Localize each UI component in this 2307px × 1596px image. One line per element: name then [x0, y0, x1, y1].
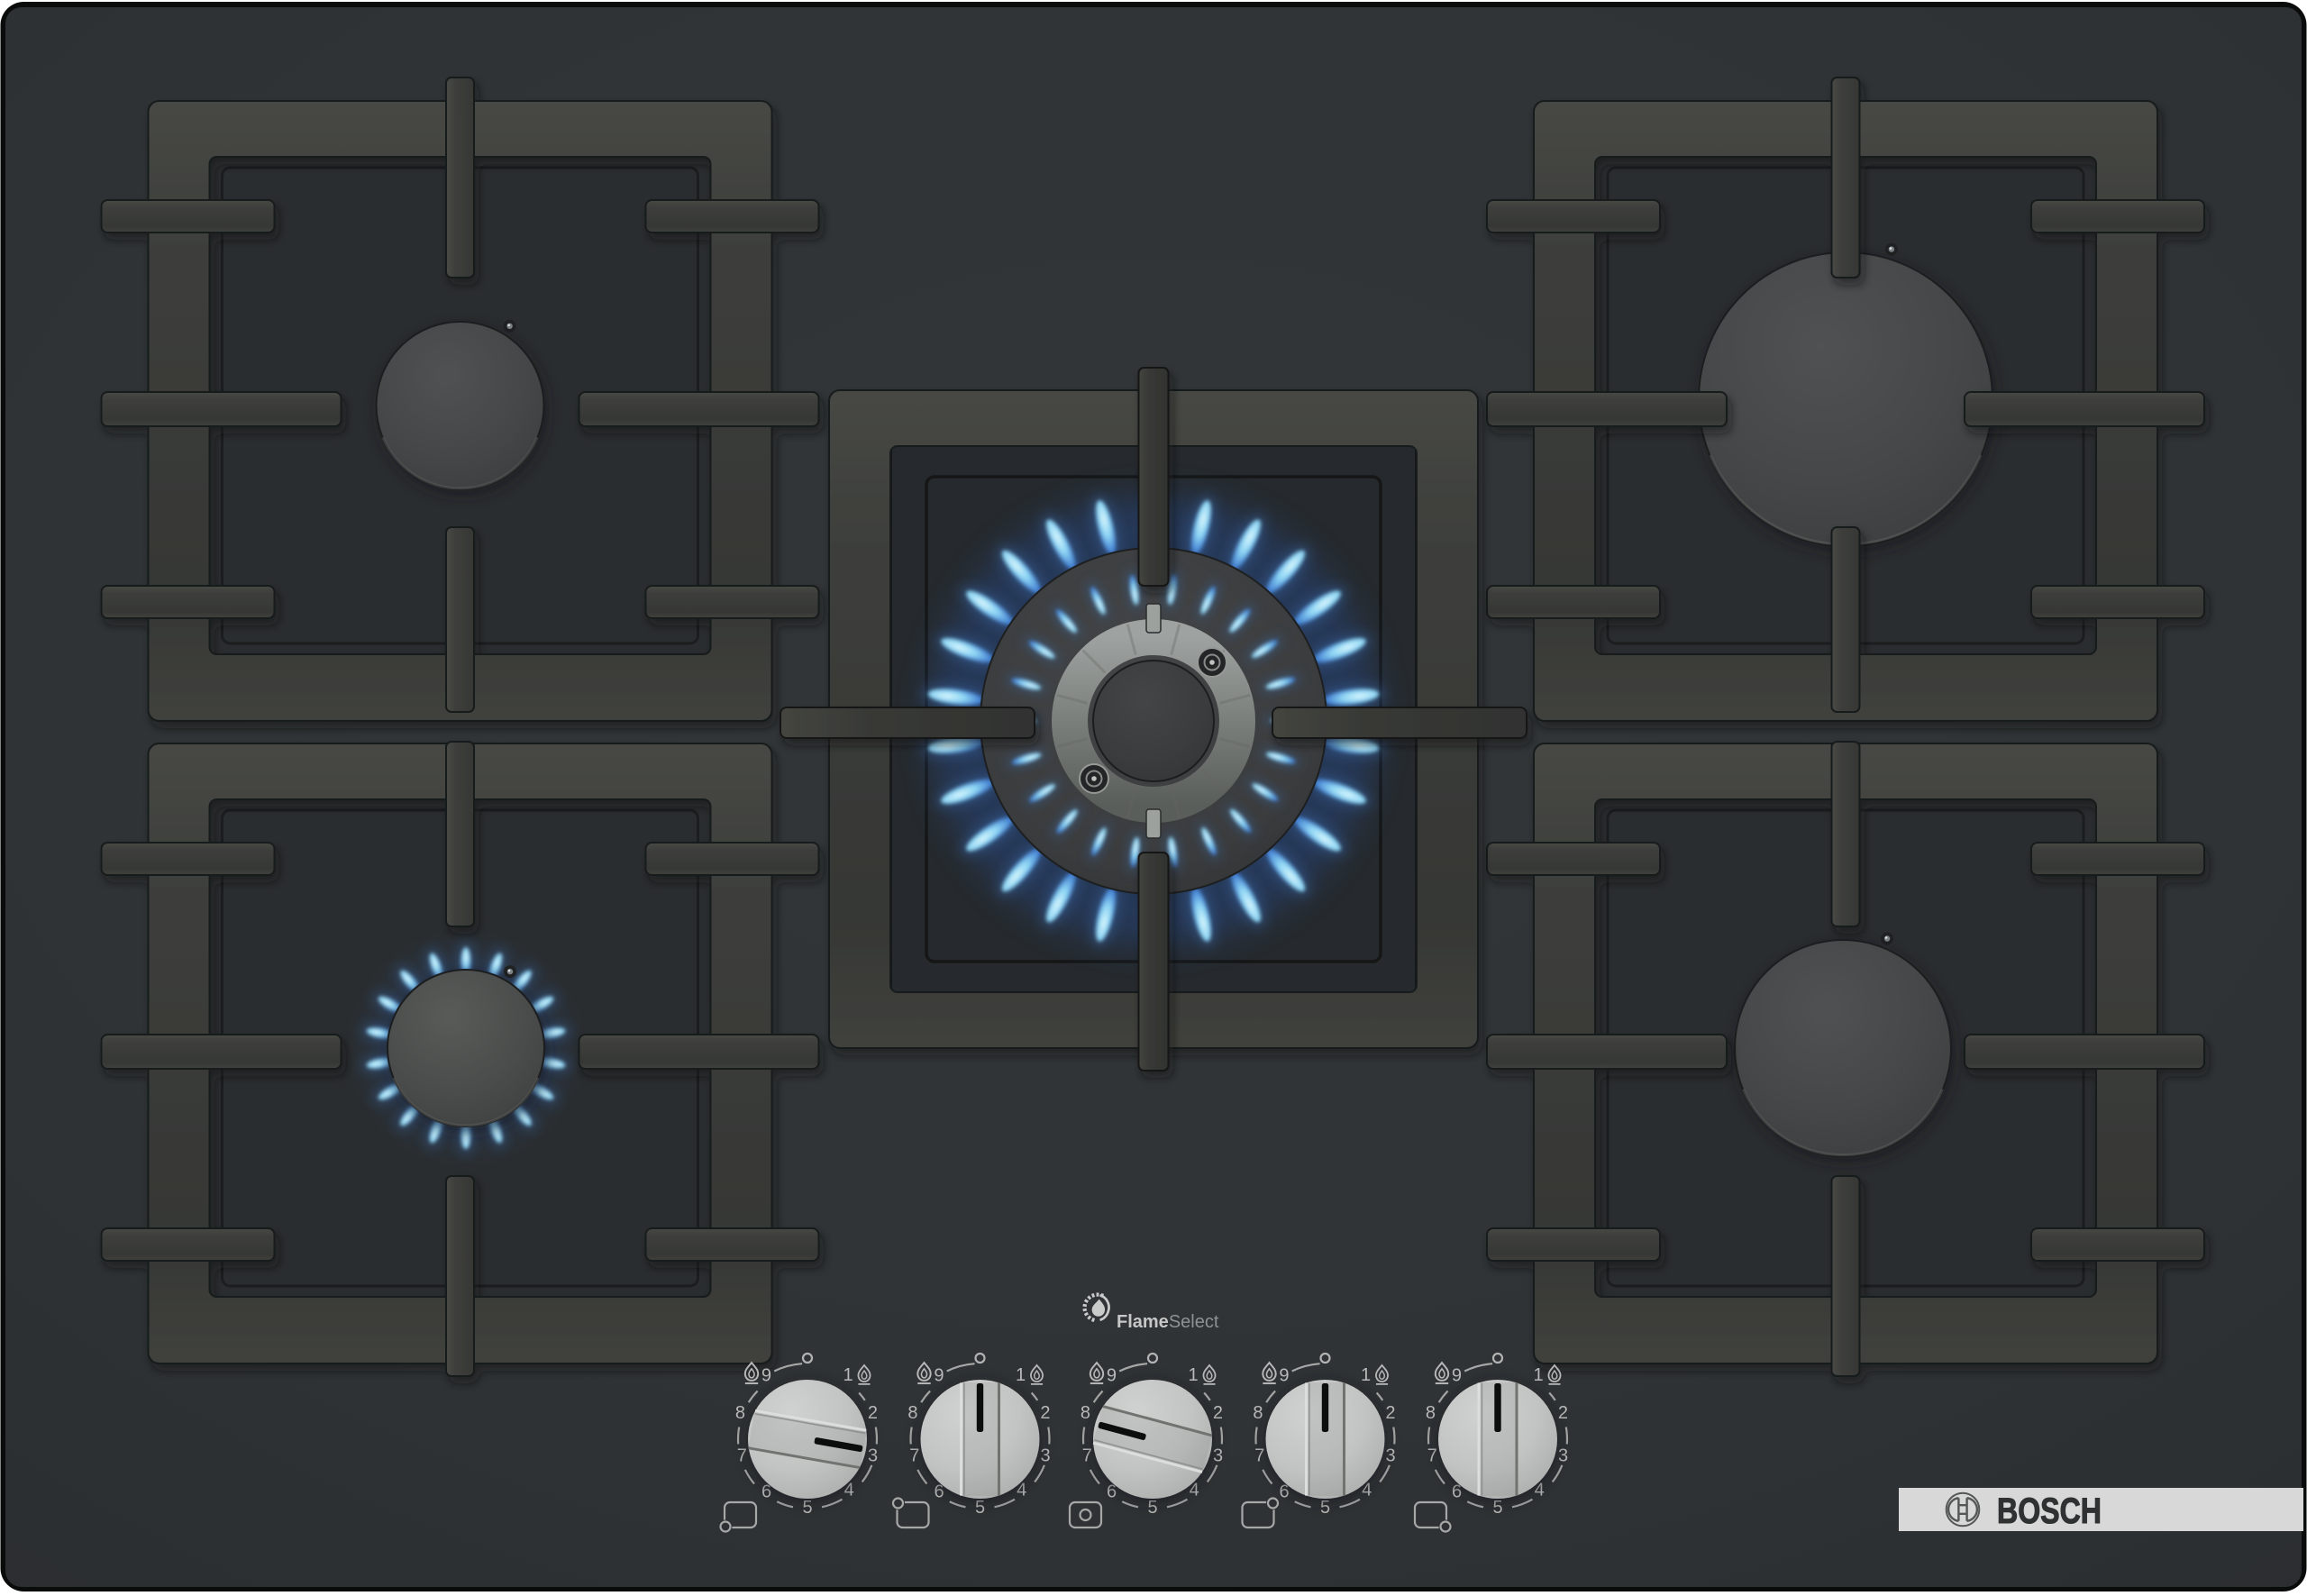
svg-text:1: 1: [843, 1365, 853, 1385]
svg-text:8: 8: [1426, 1403, 1436, 1423]
svg-text:8: 8: [1081, 1403, 1090, 1423]
svg-text:1: 1: [1533, 1365, 1543, 1385]
svg-text:2: 2: [1558, 1403, 1568, 1423]
svg-text:2: 2: [868, 1403, 878, 1423]
svg-text:1: 1: [1361, 1365, 1371, 1385]
svg-text:9: 9: [1279, 1366, 1289, 1386]
svg-text:7: 7: [737, 1446, 747, 1466]
svg-text:8: 8: [1253, 1403, 1263, 1423]
svg-text:3: 3: [1213, 1446, 1223, 1466]
svg-text:BOSCH: BOSCH: [1997, 1491, 2102, 1531]
svg-text:3: 3: [1558, 1446, 1568, 1466]
svg-text:3: 3: [1041, 1446, 1051, 1466]
svg-text:7: 7: [1427, 1446, 1437, 1466]
svg-text:7: 7: [909, 1446, 919, 1466]
svg-text:7: 7: [1254, 1446, 1264, 1466]
svg-text:9: 9: [761, 1366, 771, 1386]
svg-text:7: 7: [1082, 1446, 1092, 1466]
svg-text:2: 2: [1040, 1403, 1050, 1423]
svg-text:9: 9: [934, 1366, 944, 1386]
svg-text:9: 9: [1107, 1366, 1117, 1386]
svg-text:3: 3: [1386, 1446, 1396, 1466]
svg-text:8: 8: [735, 1403, 745, 1423]
svg-text:1: 1: [1188, 1365, 1198, 1385]
svg-text:2: 2: [1385, 1403, 1395, 1423]
svg-text:2: 2: [1213, 1403, 1223, 1423]
svg-text:FlameSelect: FlameSelect: [1117, 1312, 1219, 1332]
svg-text:8: 8: [907, 1403, 917, 1423]
svg-text:3: 3: [868, 1446, 878, 1466]
svg-text:9: 9: [1452, 1366, 1462, 1386]
svg-text:1: 1: [1016, 1365, 1026, 1385]
